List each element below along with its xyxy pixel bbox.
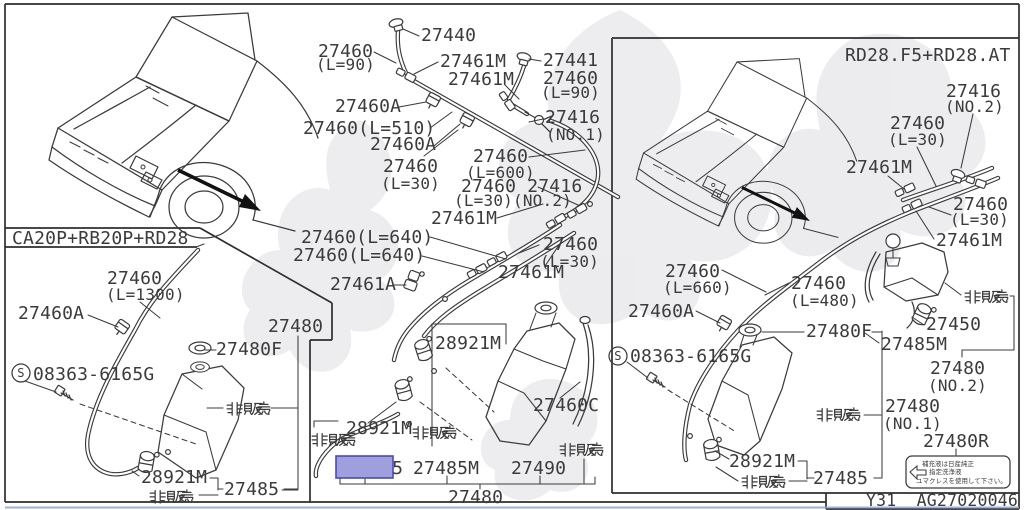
part-label: 08363-6165G (33, 364, 154, 385)
part-label: 27480 (268, 316, 323, 337)
right-panel-header: RD28.F5+RD28.AT (845, 45, 1011, 66)
tank-cap-icon (535, 302, 557, 314)
part-label: 27485M (413, 458, 479, 479)
part-label: 27461M (846, 157, 912, 178)
catalog-code: Y31 AG27020046 (866, 491, 1018, 510)
part-label: 27461M (431, 208, 497, 229)
part-label: 08363-6165G (630, 346, 751, 367)
part-label: 27460C (533, 395, 599, 416)
part-label: (L=480) (790, 291, 859, 310)
part-label: (L=1300) (106, 285, 185, 304)
note-line-1: 補充液は日産純正 (922, 459, 975, 468)
part-label: 27461M (498, 262, 564, 283)
part-label: 27480 (448, 487, 503, 508)
part-label: 27485 (813, 468, 868, 489)
part-label: (NO.2) (928, 376, 987, 395)
note-line-2: 指定洗浄液 (929, 467, 962, 476)
part-label: 27460(L=640) (293, 245, 425, 266)
note-line-3: ユマクレスを使用して下さい。 (916, 476, 1007, 485)
part-label: 27460A (370, 134, 436, 155)
part-label: 28921M (435, 333, 501, 354)
tank-cap-icon (739, 324, 761, 336)
part-label: (L=30) (381, 174, 440, 193)
part-label: (NO.2) (945, 97, 1004, 116)
part-label: 27480R (923, 431, 989, 452)
highlighted-part-marker[interactable] (336, 456, 393, 478)
part-label: 27461M (448, 69, 514, 90)
part-label: 28921M (729, 451, 795, 472)
part-label: 28921M (346, 418, 412, 439)
part-label: (L=30) (888, 130, 947, 149)
part-label: 27460A (18, 303, 84, 324)
part-label: 27485 (224, 479, 279, 500)
circled-s-label: S (17, 366, 24, 380)
parts-catalog-page: CA20P+RB20P+RD28 27460 (L=1300) 27460A S… (0, 0, 1024, 510)
parts-diagram-svg: CA20P+RB20P+RD28 27460 (L=1300) 27460A S… (0, 0, 1024, 510)
part-label: 27461A (330, 274, 396, 295)
part-label: 27480F (806, 321, 872, 342)
part-label: 27461M (936, 230, 1002, 251)
part-label: (L=90) (541, 83, 600, 102)
part-label: (L=30) (950, 210, 1009, 229)
part-label: 27490 (511, 458, 566, 479)
part-label: 28921M (141, 467, 207, 488)
circled-s-label: S (614, 349, 621, 363)
part-label: (L=660) (663, 278, 732, 297)
left-panel-header: CA20P+RB20P+RD28 (12, 228, 189, 249)
part-label: (L=90) (316, 55, 375, 74)
part-label: 27485M (881, 334, 947, 355)
part-label: 27460A (628, 301, 694, 322)
part-label: 27450 (926, 314, 981, 335)
part-label: 27460A (335, 96, 401, 117)
part-label: 27440 (421, 25, 476, 46)
part-label: (NO.1) (546, 125, 605, 144)
part-label: 27480F (216, 339, 282, 360)
